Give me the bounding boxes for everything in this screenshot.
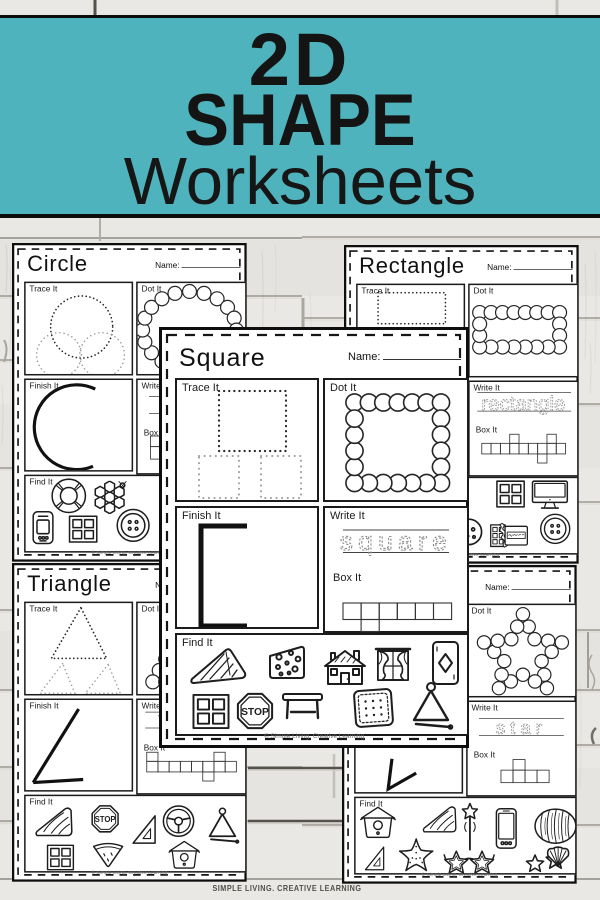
svg-text:STOP: STOP [241,707,269,718]
svg-text:rectangle: rectangle [481,393,565,415]
svg-text:star: star [496,718,547,739]
svg-text:square: square [340,526,453,556]
svg-text:STOP: STOP [95,815,116,824]
